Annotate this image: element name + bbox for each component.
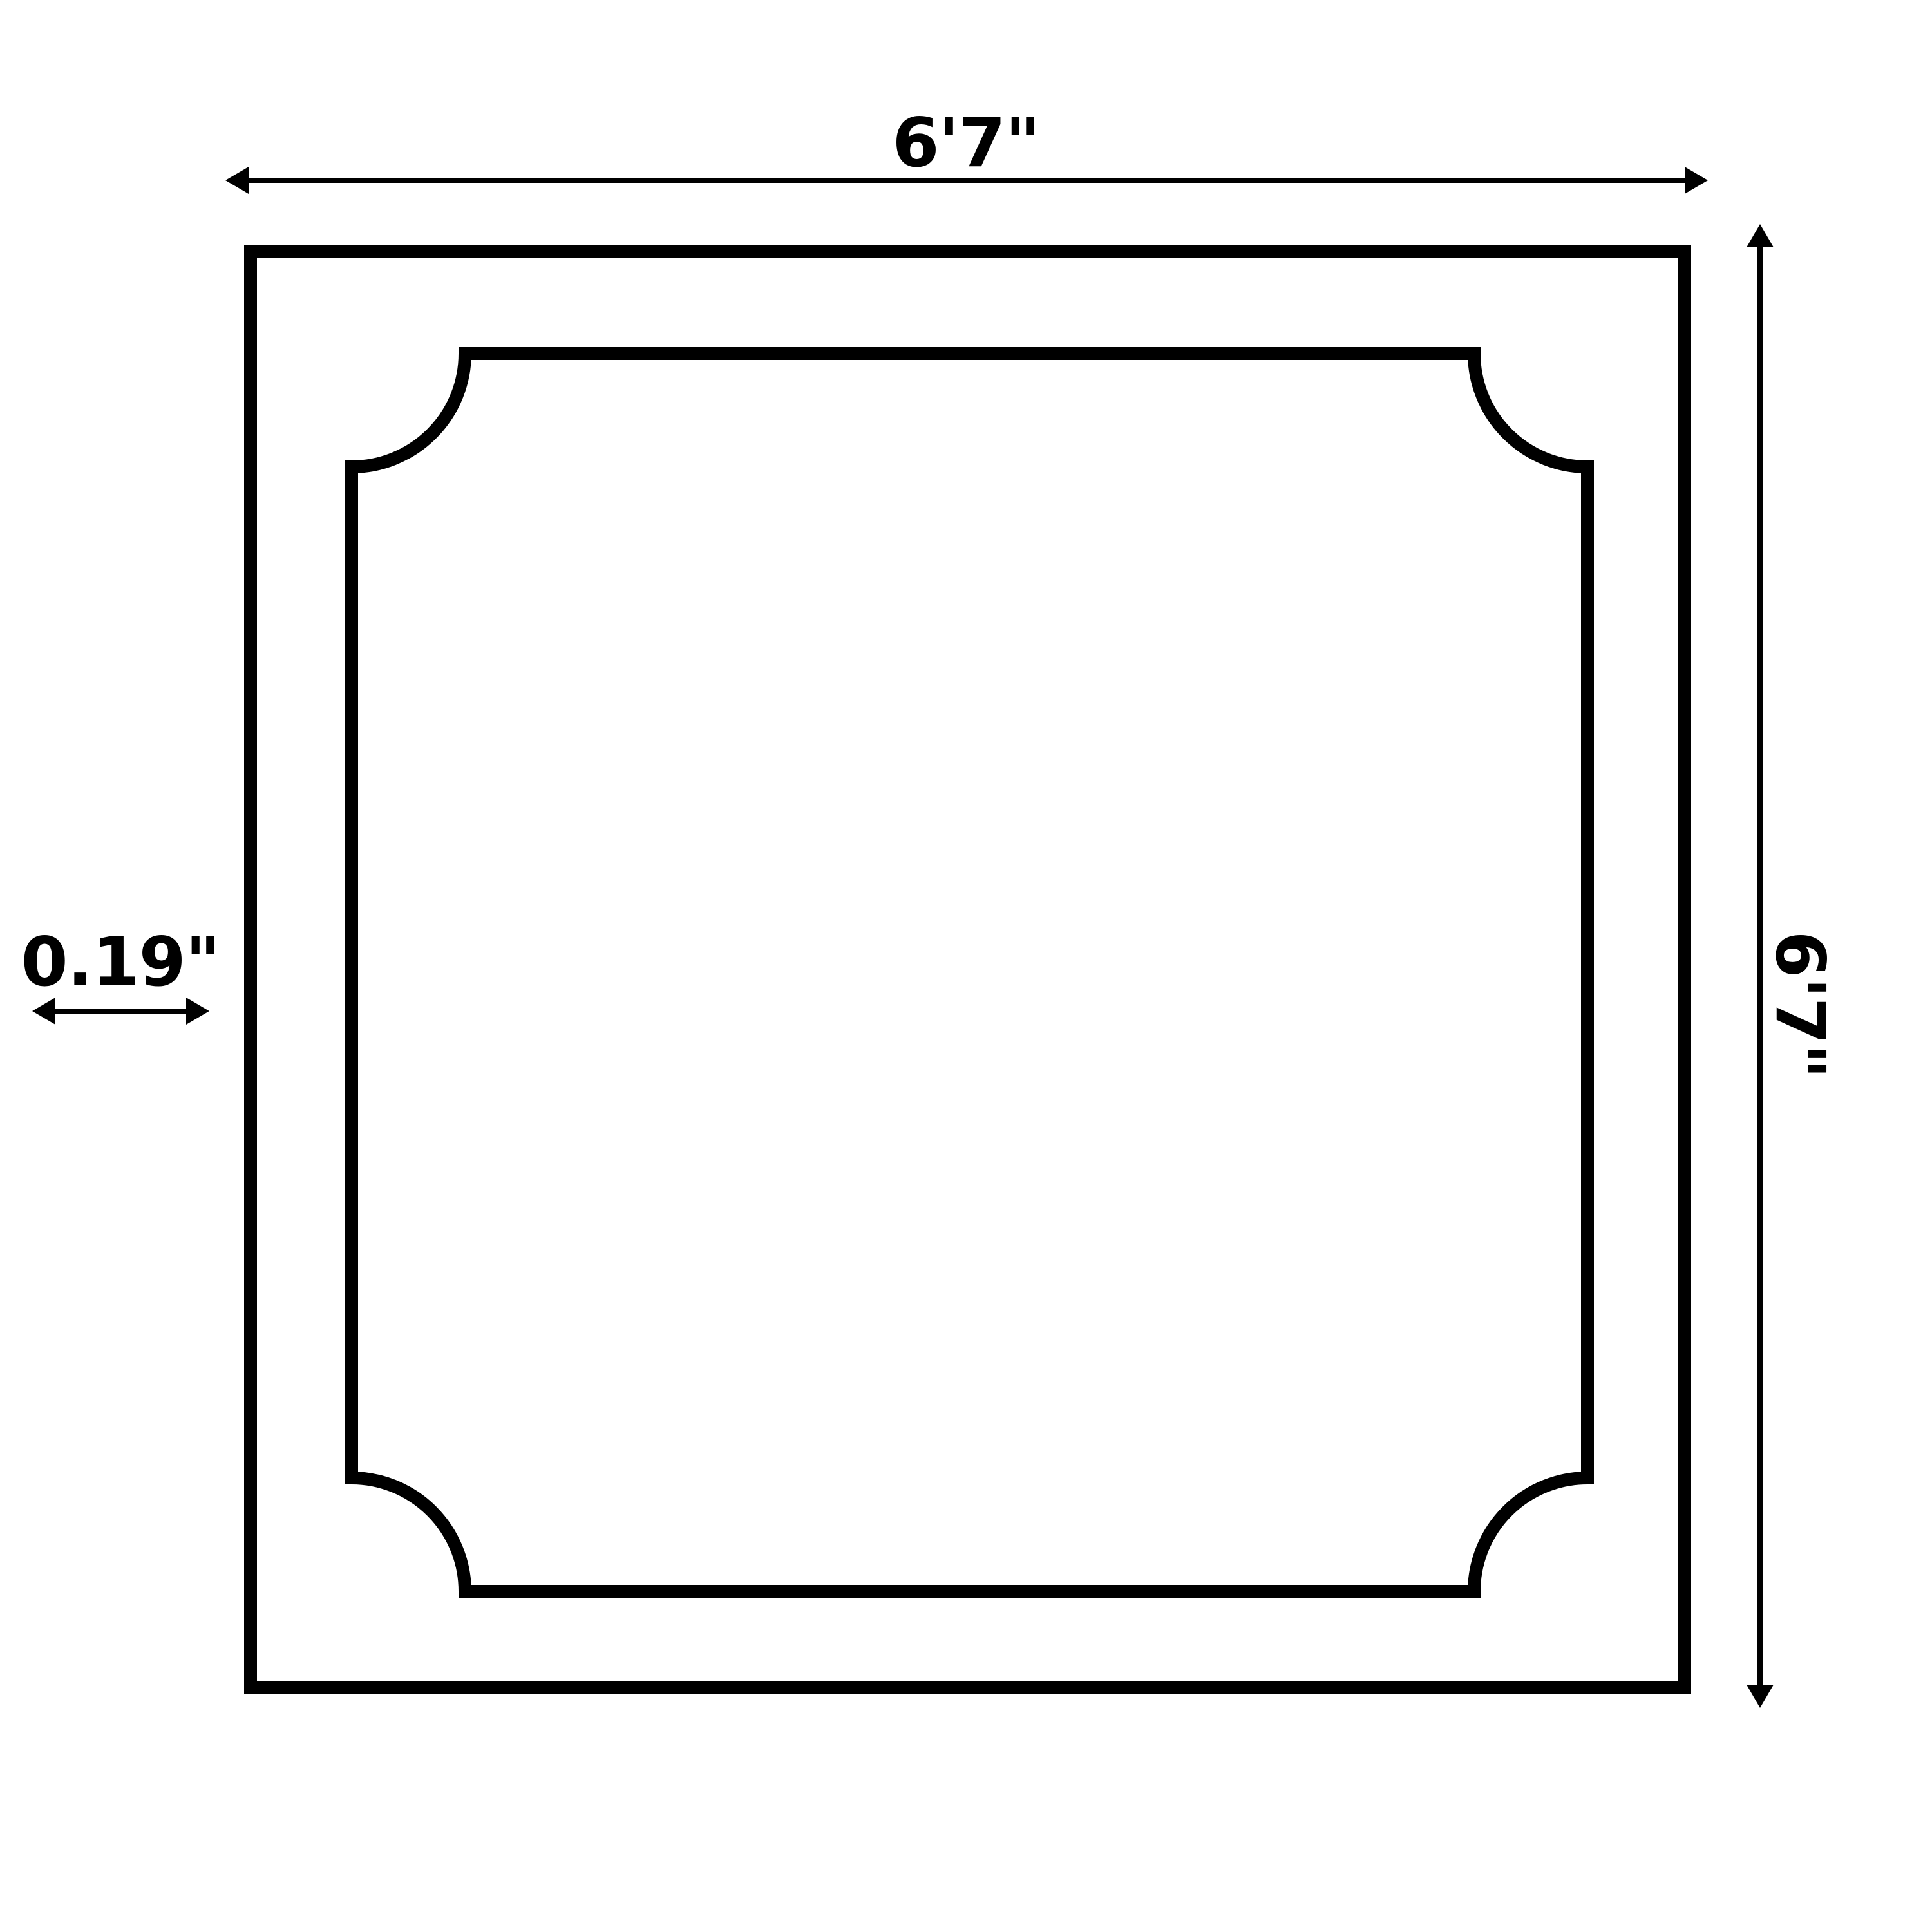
thickness-dimension-label: 0.19" — [21, 923, 220, 1001]
canvas-background — [0, 0, 1932, 1932]
thickness-dimension: 0.19" — [21, 923, 220, 1025]
dimension-diagram: 6'7" 6'7" 0.19" — [0, 0, 1932, 1932]
width-dimension-label: 6'7" — [893, 104, 1040, 182]
height-dimension-label: 6'7" — [1761, 931, 1839, 1079]
